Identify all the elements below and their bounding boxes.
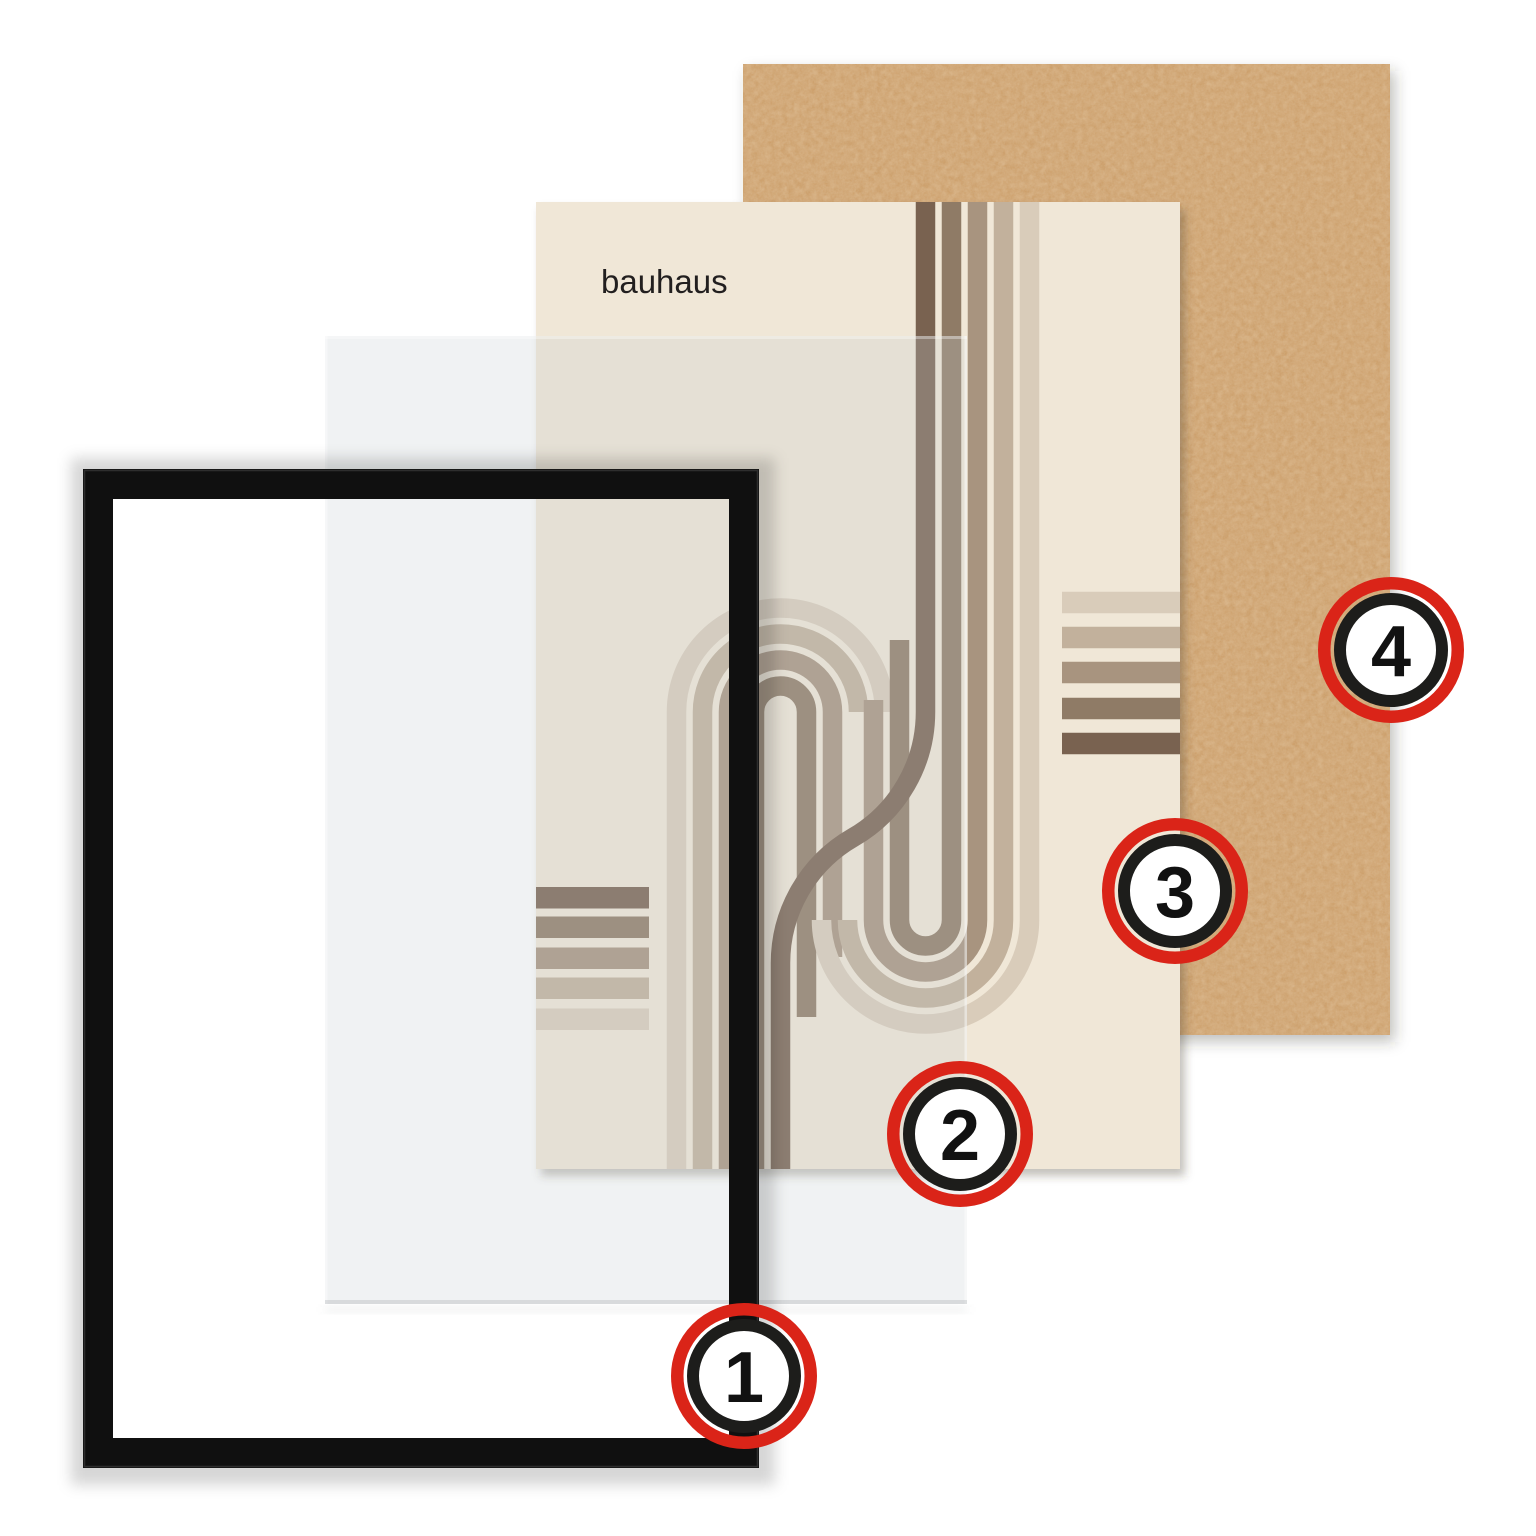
svg-text:bauhaus: bauhaus <box>601 263 728 300</box>
svg-text:1: 1 <box>724 1338 764 1418</box>
svg-text:2: 2 <box>940 1096 980 1176</box>
svg-text:4: 4 <box>1371 612 1411 692</box>
svg-text:3: 3 <box>1155 853 1195 933</box>
